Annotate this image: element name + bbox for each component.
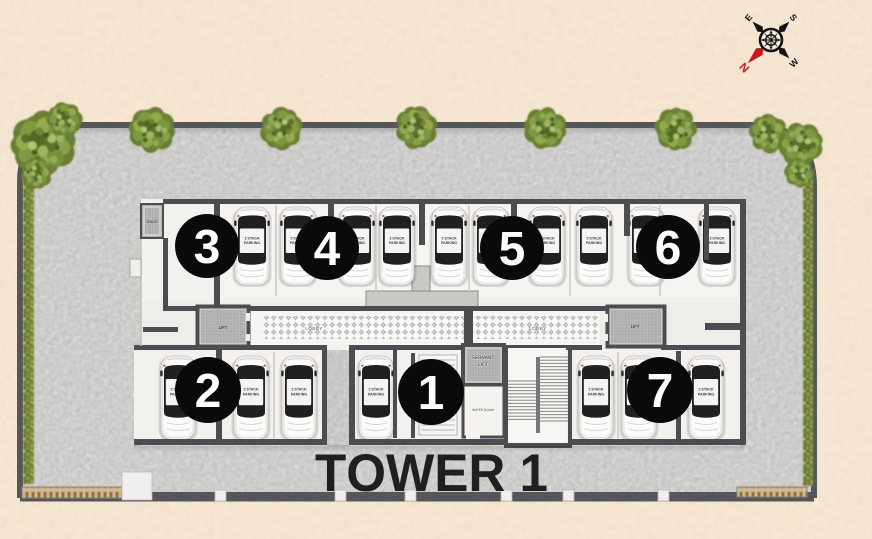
svg-text:WATER ROOM: WATER ROOM (472, 408, 494, 412)
svg-text:LIFT: LIFT (219, 325, 228, 330)
svg-text:SERVANT: SERVANT (471, 355, 494, 361)
svg-text:LOBBY: LOBBY (529, 326, 547, 331)
svg-text:TOILET: TOILET (146, 220, 158, 224)
svg-text:LOBBY: LOBBY (305, 326, 323, 331)
svg-text:LIFT: LIFT (478, 362, 488, 368)
svg-text:LIFT: LIFT (631, 324, 640, 329)
